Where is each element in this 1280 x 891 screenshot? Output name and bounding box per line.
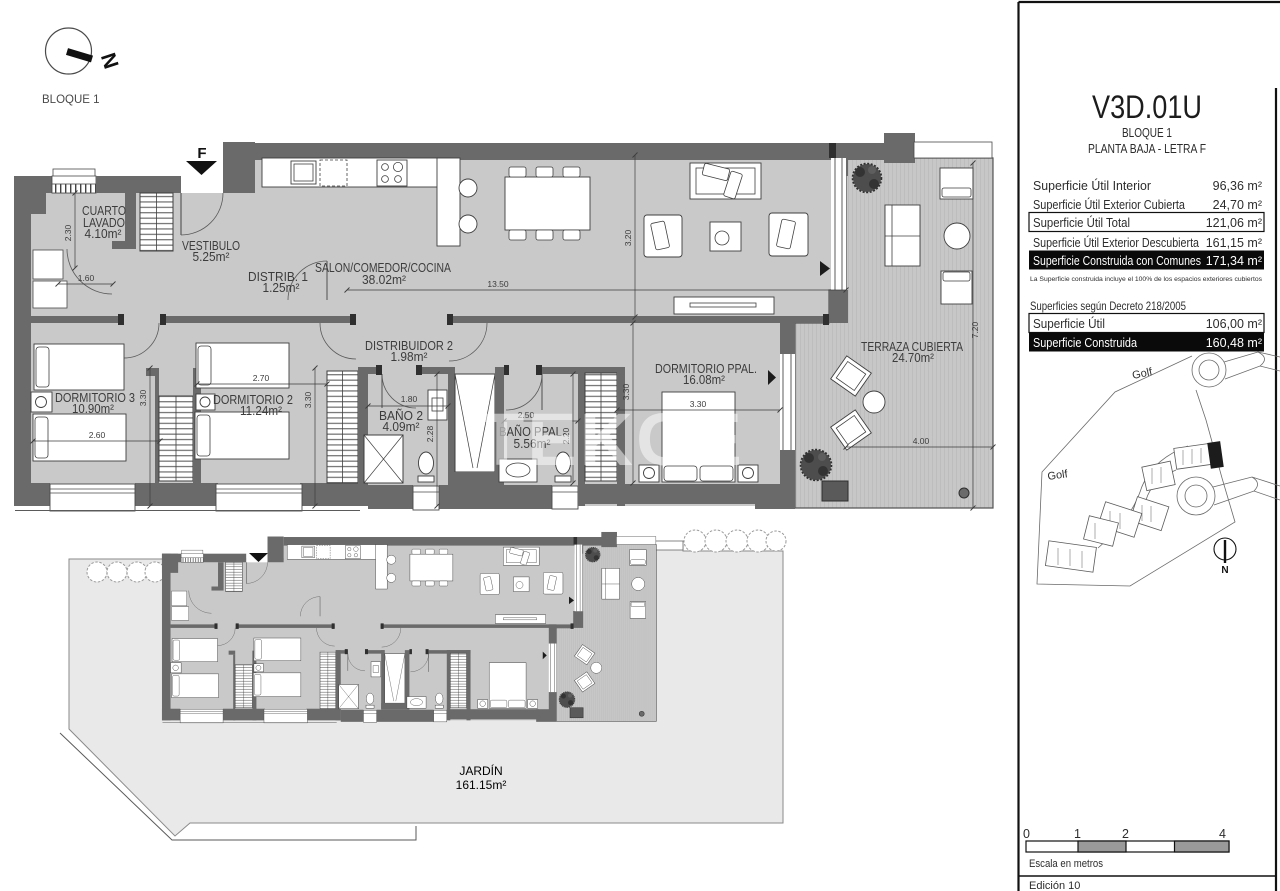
svg-text:4.09m²: 4.09m² — [383, 420, 420, 434]
svg-text:2.70: 2.70 — [253, 373, 270, 383]
svg-text:1.25m²: 1.25m² — [263, 281, 300, 295]
svg-text:2.60: 2.60 — [89, 430, 106, 440]
svg-text:171,34 m²: 171,34 m² — [1206, 254, 1262, 268]
svg-text:Escala en metros: Escala en metros — [1029, 858, 1103, 870]
svg-text:1.98m²: 1.98m² — [391, 350, 428, 364]
svg-text:Superficie Útil Exterior Cubie: Superficie Útil Exterior Cubierta — [1033, 197, 1185, 212]
svg-text:5.25m²: 5.25m² — [193, 250, 230, 264]
svg-text:24.70m²: 24.70m² — [892, 351, 934, 365]
svg-text:PLANTA BAJA - LETRA F: PLANTA BAJA - LETRA F — [1088, 142, 1206, 156]
svg-text:7.20: 7.20 — [970, 321, 980, 338]
svg-text:V3D.01U: V3D.01U — [1092, 89, 1202, 125]
svg-text:3.30: 3.30 — [303, 391, 313, 408]
svg-text:4.00: 4.00 — [913, 436, 930, 446]
svg-text:Superficie Útil: Superficie Útil — [1033, 316, 1105, 331]
svg-text:BLOQUE 1: BLOQUE 1 — [42, 94, 100, 106]
svg-text:La Superficie construida inclu: La Superficie construida incluye el 100%… — [1030, 276, 1263, 283]
svg-text:TEKCE: TEKCE — [479, 398, 745, 481]
svg-text:2: 2 — [1122, 827, 1129, 841]
svg-text:11.24m²: 11.24m² — [240, 404, 282, 418]
svg-text:0: 0 — [1023, 827, 1030, 841]
svg-text:Superficies según Decreto 218/: Superficies según Decreto 218/2005 — [1030, 299, 1186, 313]
svg-text:Superficie Construida: Superficie Construida — [1033, 336, 1137, 350]
svg-text:4.10m²: 4.10m² — [85, 227, 122, 241]
svg-text:4: 4 — [1219, 827, 1226, 841]
svg-text:F: F — [197, 145, 206, 162]
svg-text:96,36 m²: 96,36 m² — [1213, 179, 1262, 193]
svg-text:38.02m²: 38.02m² — [362, 273, 406, 287]
svg-text:3.30: 3.30 — [138, 389, 148, 406]
svg-text:24,70 m²: 24,70 m² — [1213, 198, 1262, 212]
svg-text:160,48 m²: 160,48 m² — [1206, 336, 1262, 350]
svg-text:10.90m²: 10.90m² — [72, 402, 114, 416]
svg-text:3.20: 3.20 — [623, 229, 633, 246]
svg-text:N: N — [1221, 565, 1228, 576]
svg-text:Superficie Construida con Comu: Superficie Construida con Comunes — [1033, 254, 1201, 268]
svg-text:161,15 m²: 161,15 m² — [1206, 236, 1262, 250]
svg-text:121,06 m²: 121,06 m² — [1206, 216, 1262, 230]
svg-text:BLOQUE 1: BLOQUE 1 — [1122, 126, 1172, 140]
svg-text:Edición 10: Edición 10 — [1029, 880, 1080, 891]
svg-text:Superficie Útil Total: Superficie Útil Total — [1033, 215, 1130, 230]
svg-text:1.60: 1.60 — [78, 273, 95, 283]
svg-text:2.30: 2.30 — [63, 224, 73, 241]
svg-text:Superficie Útil Exterior Descu: Superficie Útil Exterior Descubierta — [1033, 235, 1199, 250]
svg-text:161.15m²: 161.15m² — [456, 778, 507, 792]
svg-text:Superficie Útil Interior: Superficie Útil Interior — [1033, 178, 1151, 193]
svg-text:106,00 m²: 106,00 m² — [1206, 317, 1262, 331]
svg-text:1.80: 1.80 — [401, 394, 418, 404]
svg-text:1: 1 — [1074, 827, 1081, 841]
svg-text:JARDÍN: JARDÍN — [459, 763, 502, 778]
svg-text:13.50: 13.50 — [487, 279, 509, 289]
svg-text:16.08m²: 16.08m² — [683, 373, 725, 387]
svg-text:2.28: 2.28 — [425, 425, 435, 442]
